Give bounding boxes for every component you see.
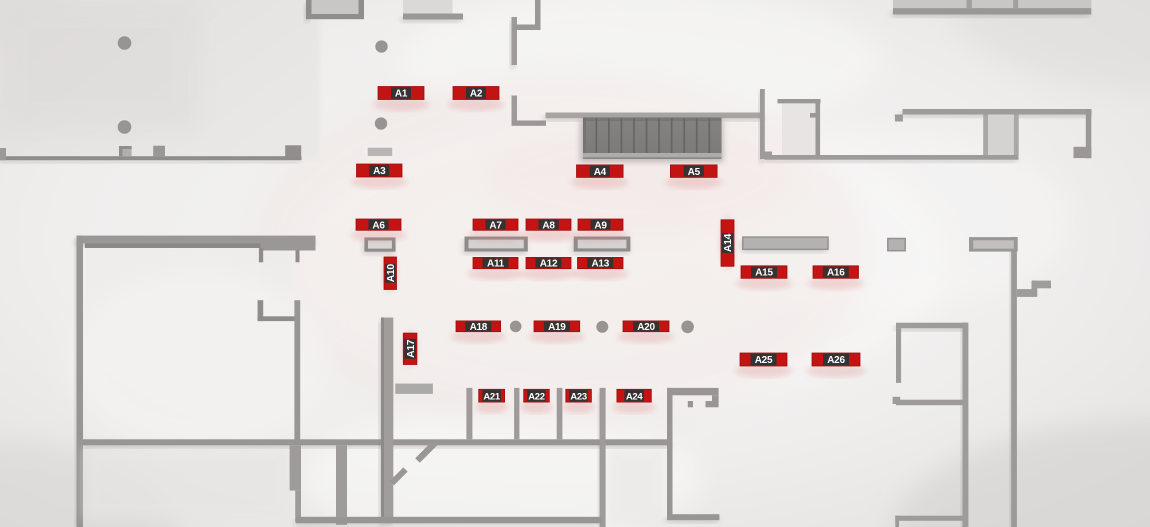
svg-text:A19: A19	[548, 322, 566, 333]
svg-text:A7: A7	[489, 220, 502, 231]
svg-text:A1: A1	[395, 89, 408, 100]
svg-text:A25: A25	[755, 355, 773, 366]
svg-text:A11: A11	[487, 259, 505, 270]
svg-text:A9: A9	[594, 220, 607, 231]
svg-text:A23: A23	[570, 391, 587, 402]
svg-text:A4: A4	[594, 167, 607, 178]
svg-text:A3: A3	[373, 166, 386, 177]
svg-text:A18: A18	[470, 322, 488, 333]
svg-text:A16: A16	[827, 268, 845, 279]
svg-text:A20: A20	[637, 322, 655, 333]
svg-text:A8: A8	[542, 220, 555, 231]
svg-text:A15: A15	[755, 268, 773, 279]
svg-text:A10: A10	[385, 264, 397, 283]
svg-text:A17: A17	[405, 339, 417, 358]
svg-text:A2: A2	[470, 89, 483, 100]
svg-text:A22: A22	[528, 391, 545, 402]
svg-text:A12: A12	[540, 259, 558, 270]
svg-text:A24: A24	[626, 391, 644, 402]
svg-text:A21: A21	[483, 391, 501, 402]
svg-text:A6: A6	[372, 220, 385, 231]
svg-text:A14: A14	[722, 233, 734, 252]
svg-text:A5: A5	[688, 167, 701, 178]
svg-text:A26: A26	[827, 355, 845, 366]
svg-text:A13: A13	[592, 259, 610, 270]
